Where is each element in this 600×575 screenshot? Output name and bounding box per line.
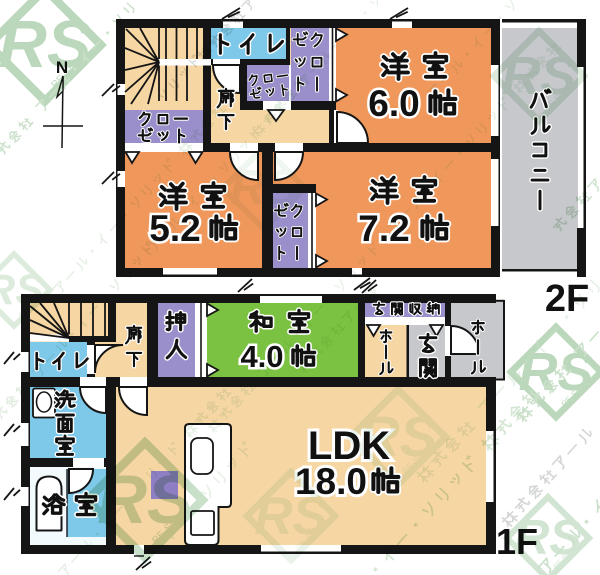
svg-text:6.0: 6.0 xyxy=(368,83,419,124)
svg-text:RS: RS xyxy=(0,7,92,82)
svg-text:RS: RS xyxy=(0,266,44,314)
svg-text:RS: RS xyxy=(514,511,582,565)
svg-text:RS: RS xyxy=(501,46,576,106)
svg-text:RS: RS xyxy=(254,487,328,546)
svg-text:RS: RS xyxy=(358,405,437,469)
svg-text:RS: RS xyxy=(230,161,298,215)
svg-text:7.2: 7.2 xyxy=(358,208,409,249)
